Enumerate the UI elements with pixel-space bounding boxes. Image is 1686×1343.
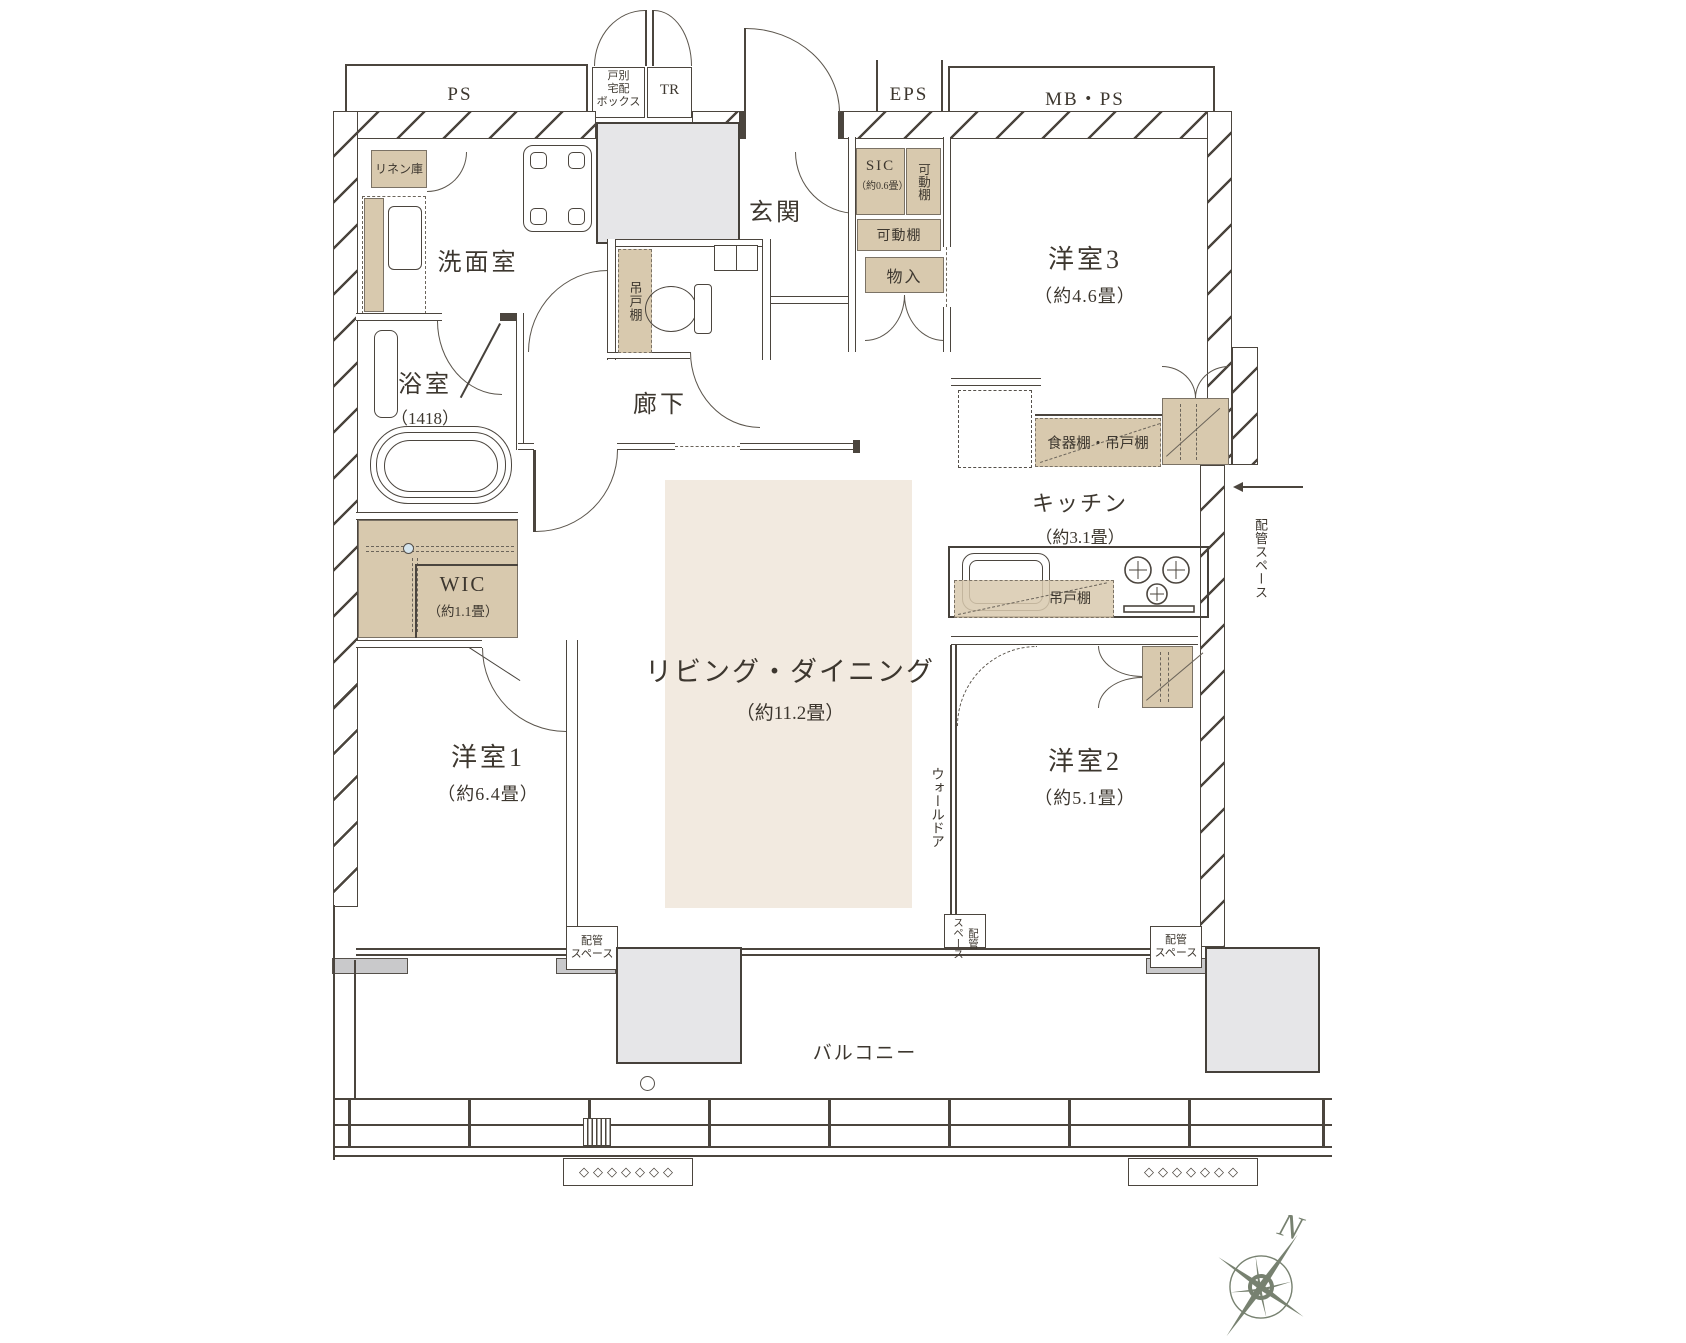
wic-size: （約1.1畳）: [408, 600, 518, 620]
railing-post-6: [948, 1098, 951, 1146]
ps-bracket-top: [345, 64, 588, 66]
hall-opening-dashed: [675, 446, 740, 447]
bath-size: （1418）: [365, 404, 485, 429]
bath-wic-divider: [356, 512, 518, 520]
balcony-drain: [640, 1076, 655, 1091]
exterior-wall-right-bump: [1232, 347, 1258, 465]
balcony-label: バルコニー: [805, 1038, 925, 1065]
bed1-door-arc: [482, 648, 566, 732]
railing-post-2: [468, 1098, 471, 1146]
delivery-door-arc-left: [594, 10, 645, 66]
pantry-shelf-line-2: [1196, 404, 1197, 460]
eps-label: EPS: [877, 84, 941, 106]
living-size: （約11.2畳）: [645, 698, 935, 725]
bed3-size: （約4.6畳）: [995, 282, 1175, 308]
kitchen-label-block: キッチン （約3.1畳）: [1000, 486, 1160, 548]
powder-room-door-arc: [528, 270, 608, 352]
bed1-label-block: 洋室1 （約6.4畳）: [398, 744, 578, 806]
powder-room-label: 洗面室: [398, 242, 558, 277]
wic-hanger-rail-1: [366, 546, 514, 547]
floor-plan: PS 戸別 宅配 ボックス TR EPS MB・PS リネン庫 洗面室: [0, 0, 1686, 1343]
exterior-wall-top-right: [840, 111, 1232, 139]
pantry-door-right: [1195, 366, 1229, 398]
railing-line-bottom: [333, 1146, 1332, 1148]
railing-post-4: [708, 1098, 711, 1146]
window-line-inner: [356, 954, 1200, 956]
front-door-arc: [746, 28, 840, 113]
pipe-space-kitchen-label: 配管スペース: [1248, 498, 1270, 618]
vent-diamond-strip-right: ◇◇◇◇◇◇◇: [1128, 1158, 1258, 1186]
movable-shelf-1-label: 可動棚: [908, 152, 939, 212]
balcony-divider-line: [354, 960, 356, 1100]
vanity-pad-tl: [530, 152, 547, 169]
bed2-closet-door-bottom: [1098, 677, 1142, 708]
toilet-shelf-divider: [736, 245, 737, 271]
sic-wall-left: [848, 137, 856, 352]
entrance-step: [771, 296, 855, 304]
ps-bracket-right: [586, 64, 588, 113]
vent-diamond-strip-left: ◇◇◇◇◇◇◇: [563, 1158, 693, 1186]
bed3-wall-left-upper: [943, 137, 951, 247]
compass-north-label: N: [1273, 1215, 1309, 1249]
hall-label: 廊下: [610, 384, 710, 419]
kitchen-size: （約3.1畳）: [1000, 523, 1160, 548]
railing-post-5: [828, 1098, 831, 1146]
railing-post-7: [1068, 1098, 1071, 1146]
entrance-label: 玄関: [731, 192, 821, 227]
kitchen-label: キッチン: [1000, 486, 1160, 518]
front-door-post-left: [740, 111, 746, 139]
wic-label-block: WIC （約1.1畳）: [408, 572, 518, 620]
linen-door-arc: [427, 152, 467, 192]
shaft-gray-box-top: [596, 122, 740, 244]
bed3-sliding-door: [946, 247, 947, 307]
bathtub-inner: [384, 440, 498, 492]
front-door-post-right: [838, 111, 844, 139]
wall-door-label: ウォールドア: [926, 752, 946, 862]
vanity-pad-bl: [530, 208, 547, 225]
wic-label: WIC: [408, 572, 518, 597]
vanity-pad-br: [568, 208, 585, 225]
toilet-bowl: [645, 286, 697, 332]
compass-rose-icon: N: [1195, 1215, 1335, 1343]
bed2-closet-line-1: [1160, 652, 1161, 702]
ps-label: PS: [410, 84, 510, 106]
bath-label-block: 浴室 （1418）: [365, 364, 485, 429]
living-label-block: リビング・ダイニング （約11.2畳）: [645, 650, 935, 725]
railing-hatch-box: [583, 1118, 611, 1146]
bed3-wall-bottom: [951, 378, 1041, 386]
dish-hanging-shelf-label: 食器棚・吊戸棚: [1035, 418, 1161, 467]
small-closet-door-left: [865, 295, 905, 341]
hall-wall-left: [516, 313, 524, 450]
bed3-wall-left-lower: [943, 307, 951, 352]
hall-wall-bottom-b: [617, 443, 675, 450]
exterior-wall-right-lower: [1200, 465, 1225, 947]
wic-inner-wall-h: [415, 564, 518, 566]
bed1-wall-top-left: [356, 640, 482, 648]
mbps-bracket-top: [948, 66, 1215, 68]
bath-wall-top: [356, 313, 442, 321]
eps-bracket-right: [941, 60, 943, 113]
railing-post-9: [1322, 1098, 1325, 1146]
vanity-pad-tr: [568, 152, 585, 169]
bed2-walldoor-arc: [957, 646, 1037, 726]
pantry-door-left: [1162, 366, 1196, 398]
delivery-box-label: 戸別 宅配 ボックス: [592, 70, 645, 110]
bed2-size: （約5.1畳）: [995, 784, 1175, 810]
hall-ld-door-arc: [536, 450, 618, 532]
sic-label: SIC: [856, 158, 905, 175]
balcony-edge-line: [333, 1155, 1332, 1157]
window-sill-left: [332, 958, 408, 974]
washer-side-shelf: [364, 198, 384, 312]
toilet-wall-right: [762, 239, 771, 360]
bed2-wall-top: [951, 636, 1198, 645]
bed3-label: 洋室3: [995, 246, 1175, 275]
delivery-door-arc-right: [654, 10, 692, 66]
railing-post-8: [1188, 1098, 1191, 1146]
dish-shelf-top-line: [1035, 414, 1162, 416]
trunk-room-label: TR: [647, 82, 692, 99]
railing-line-mid: [333, 1124, 1332, 1126]
mbps-bracket-right: [1213, 66, 1215, 113]
stove: [1112, 550, 1204, 614]
exterior-wall-top-left: [333, 111, 596, 139]
small-closet-label: 物入: [865, 257, 944, 293]
kitchen-hanging-shelf-label: 吊戸棚: [1030, 588, 1110, 608]
railing-post-1: [348, 1098, 351, 1146]
window-line-outer: [356, 948, 1200, 950]
mbps-bracket-left: [948, 66, 950, 113]
balcony-gray-box-right: [1205, 947, 1320, 1073]
toilet-wall-left: [607, 239, 616, 360]
sic-label-block: SIC （約0.6畳）: [856, 158, 905, 192]
bed2-label-block: 洋室2 （約5.1畳）: [995, 748, 1175, 810]
balcony-gray-box-center: [616, 947, 742, 1064]
toilet-wall-bottom: [607, 352, 690, 359]
bed1-size: （約6.4畳）: [398, 780, 578, 806]
bed3-label-block: 洋室3 （約4.6畳）: [995, 246, 1175, 308]
mbps-label: MB・PS: [1020, 84, 1150, 111]
movable-shelf-2-label: 可動棚: [857, 219, 941, 251]
sic-size: （約0.6畳）: [856, 177, 905, 192]
pipe-space-bottom-right-label: 配管 スペース: [1150, 926, 1202, 968]
living-label: リビング・ダイニング: [645, 650, 935, 689]
bed2-closet-line-2: [1168, 652, 1169, 702]
pipe-space-bottom-left-label: 配管 スペース: [566, 926, 618, 970]
wall-door-line-1: [950, 645, 952, 947]
hall-wall-bottom-c: [740, 443, 858, 450]
pipe-space-bottom-mid-label: 配管 スペース: [946, 912, 984, 964]
railing-line-top: [333, 1098, 1332, 1100]
bath-label: 浴室: [365, 364, 485, 399]
balcony-left-edge: [333, 905, 335, 1160]
delivery-door-leaf-left: [645, 10, 647, 66]
linen-cabinet-label: リネン庫: [371, 150, 427, 188]
hall-wall-bottom-a: [518, 443, 534, 450]
pantry-shelf-line-1: [1180, 404, 1181, 460]
wic-hanger-rail-2: [366, 551, 514, 552]
bath-door-post: [500, 313, 516, 321]
wall-door-line-2: [955, 645, 957, 947]
pipe-arrow-line: [1241, 486, 1303, 488]
small-closet-door-right: [904, 295, 944, 341]
hall-wall-end-post: [853, 440, 860, 453]
exterior-wall-left: [333, 111, 358, 907]
fridge-space: [958, 390, 1032, 468]
wic-pipe-dot: [403, 543, 414, 554]
ps-bracket-left: [345, 64, 347, 113]
bed2-closet-door-top: [1098, 646, 1142, 677]
bed1-label: 洋室1: [398, 744, 578, 773]
toilet-tank: [694, 284, 712, 334]
bed2-label: 洋室2: [995, 748, 1175, 777]
